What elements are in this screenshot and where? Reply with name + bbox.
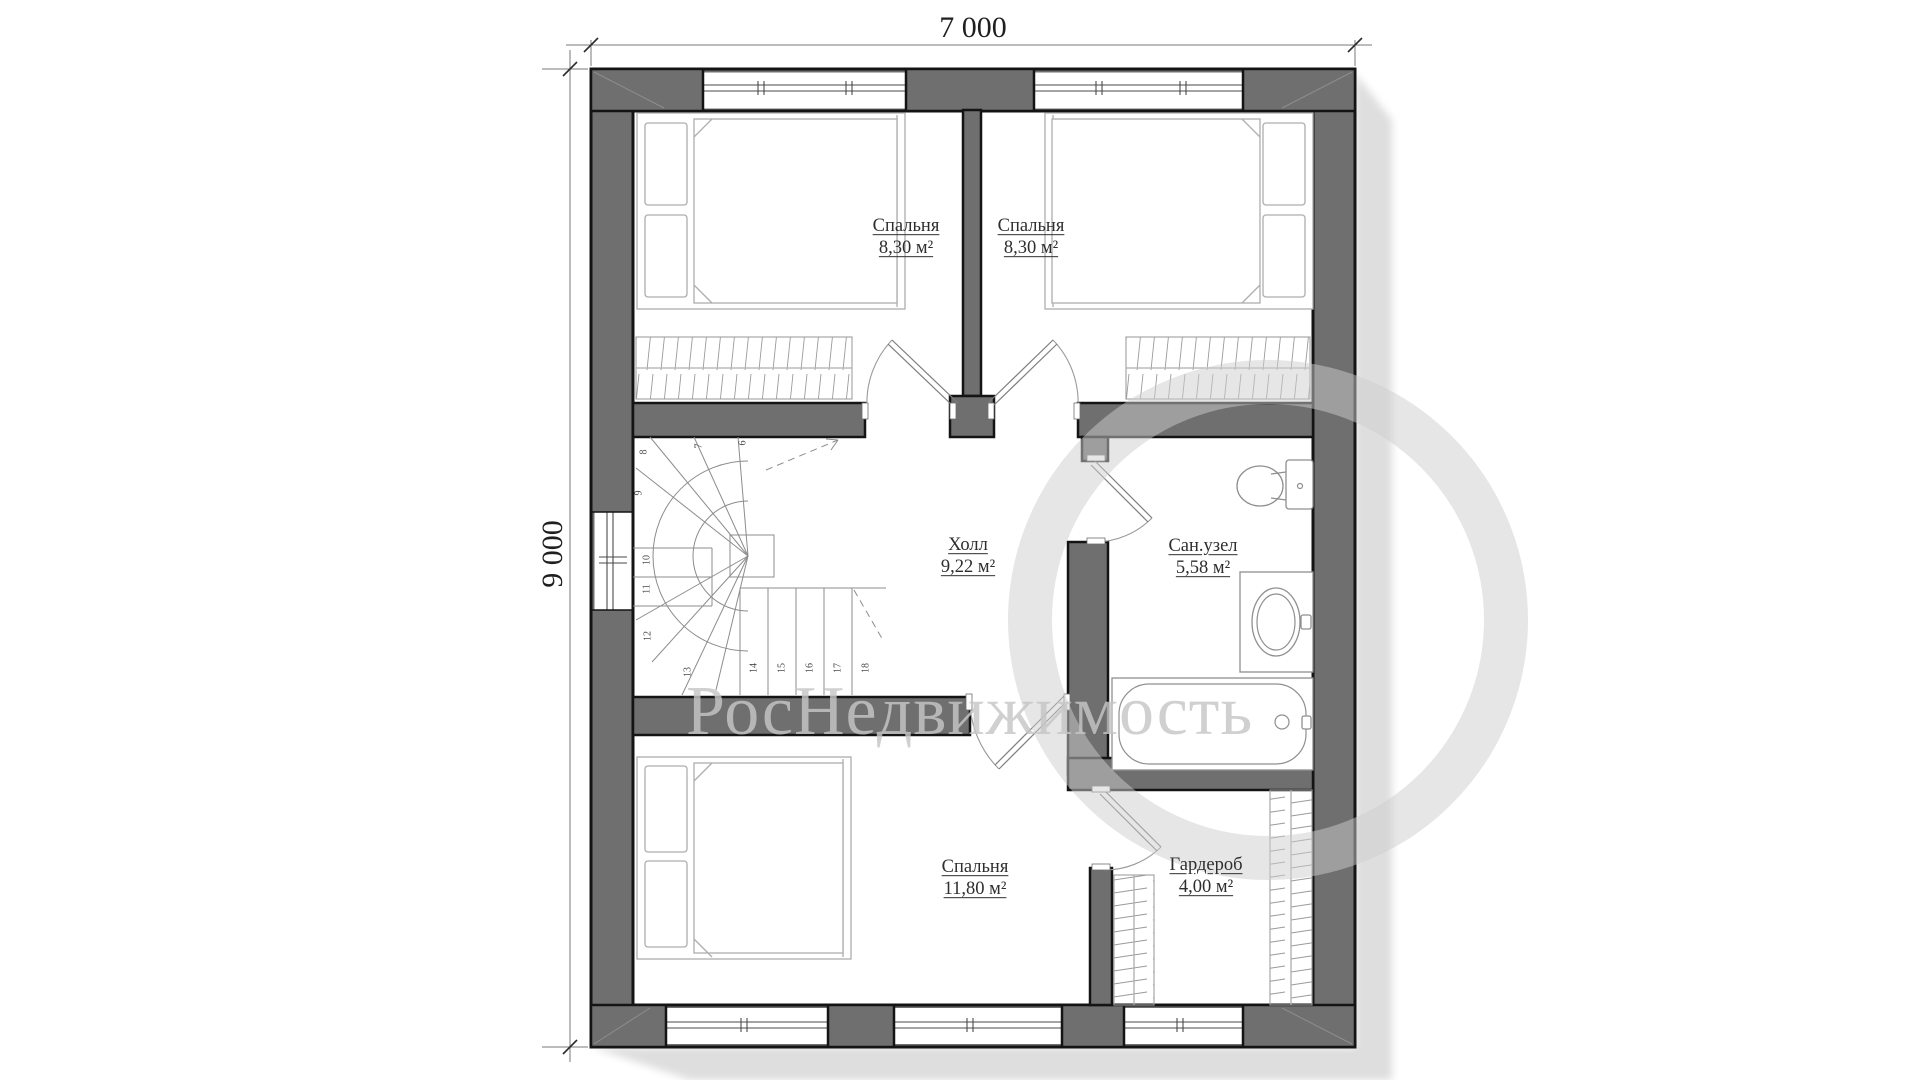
room-label-bedroom-top-left: Спальня 8,30 м²	[873, 216, 940, 260]
room-label-bedroom-top-right: Спальня 8,30 м²	[998, 216, 1065, 260]
room-label-bedroom-bottom: Спальня 11,80 м²	[942, 857, 1009, 901]
stair-step-number: 15	[777, 663, 788, 673]
floor-plan-page: РосНедвижимость Спальня 8,30 м² Спальня …	[0, 0, 1920, 1080]
stair-step-number: 8	[639, 450, 650, 455]
room-label-hall: Холл 9,22 м²	[941, 535, 995, 579]
closet-top-left	[636, 337, 852, 399]
stair-step-number: 18	[861, 663, 872, 673]
room-name: Гардероб	[1170, 855, 1243, 877]
room-name: Холл	[941, 535, 995, 557]
room-name: Спальня	[942, 857, 1009, 879]
room-name: Сан.узел	[1168, 536, 1237, 558]
room-area: 8,30 м²	[998, 238, 1065, 260]
stair-step-number: 11	[642, 584, 653, 594]
stair-step-number: 7	[694, 444, 705, 449]
stair-step-number: 17	[833, 663, 844, 673]
stair-step-number: 6	[738, 441, 749, 446]
bed-top-left	[637, 113, 905, 309]
room-name: Спальня	[998, 216, 1065, 238]
room-label-bathroom: Сан.узел 5,58 м²	[1168, 536, 1237, 580]
room-name: Спальня	[873, 216, 940, 238]
dimension-width-label: 7 000	[939, 11, 1007, 45]
room-area: 8,30 м²	[873, 238, 940, 260]
room-area: 4,00 м²	[1170, 877, 1243, 899]
room-label-wardrobe: Гардероб 4,00 м²	[1170, 855, 1243, 899]
stair-step-number: 16	[805, 663, 816, 673]
sink-vanity	[1240, 572, 1313, 672]
stair-step-number: 9	[634, 491, 645, 496]
stair-step-number: 12	[643, 631, 654, 641]
room-area: 9,22 м²	[941, 557, 995, 579]
dimension-height-label: 9 000	[536, 520, 570, 588]
bed-top-right	[1045, 113, 1313, 309]
stair-step-number: 14	[749, 663, 760, 673]
stair-step-number: 10	[642, 555, 653, 565]
stair-step-number: 13	[683, 667, 694, 677]
room-area: 5,58 м²	[1168, 558, 1237, 580]
bed-bottom	[637, 757, 851, 959]
watermark-text: РосНедвижимость	[686, 672, 1253, 752]
room-area: 11,80 м²	[942, 879, 1009, 901]
